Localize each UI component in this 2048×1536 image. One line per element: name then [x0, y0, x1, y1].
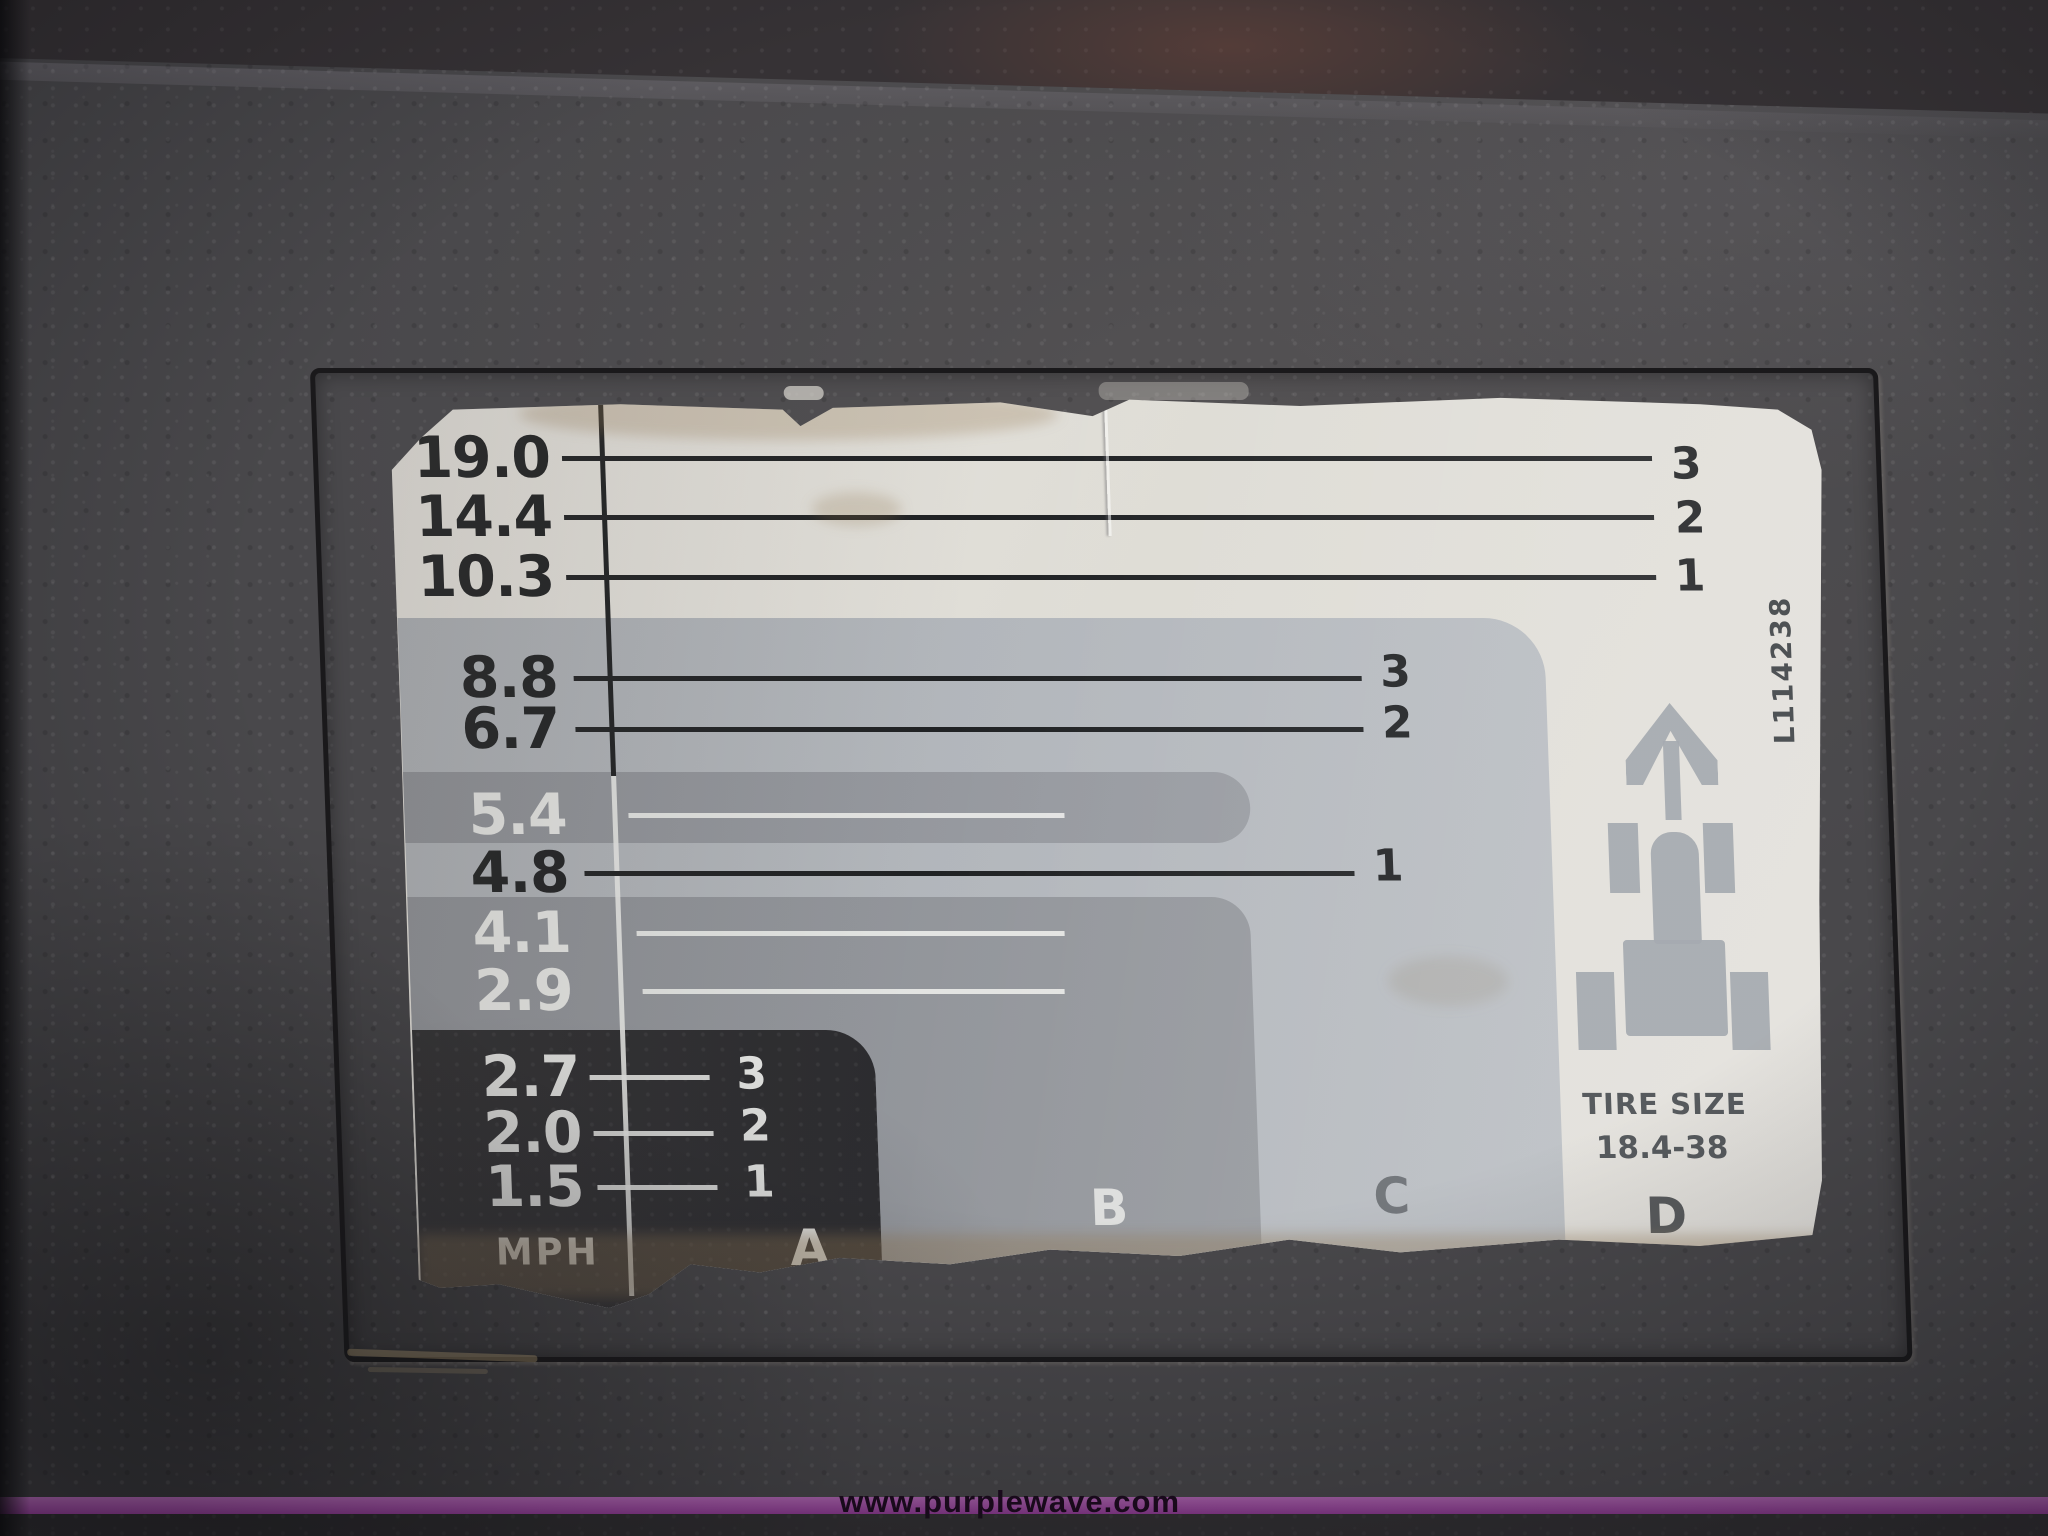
- lighting-overlay: [388, 396, 1854, 1308]
- photo-left-shadow: [0, 0, 30, 1536]
- torn-paper-fleck: [783, 386, 823, 400]
- bottom-strip: [0, 1514, 2048, 1536]
- speed-chart-decal: 19.0 14.4 10.3 8.8 6.7 5.4 4.8 4.1 2.9 2…: [388, 396, 1854, 1308]
- panel-face: 19.0 14.4 10.3 8.8 6.7 5.4 4.8 4.1 2.9 2…: [0, 0, 2048, 1536]
- photo-of-speed-chart-decal: 19.0 14.4 10.3 8.8 6.7 5.4 4.8 4.1 2.9 2…: [0, 0, 2048, 1536]
- scratch-mark: [368, 1367, 488, 1374]
- torn-paper-fleck: [1098, 382, 1249, 400]
